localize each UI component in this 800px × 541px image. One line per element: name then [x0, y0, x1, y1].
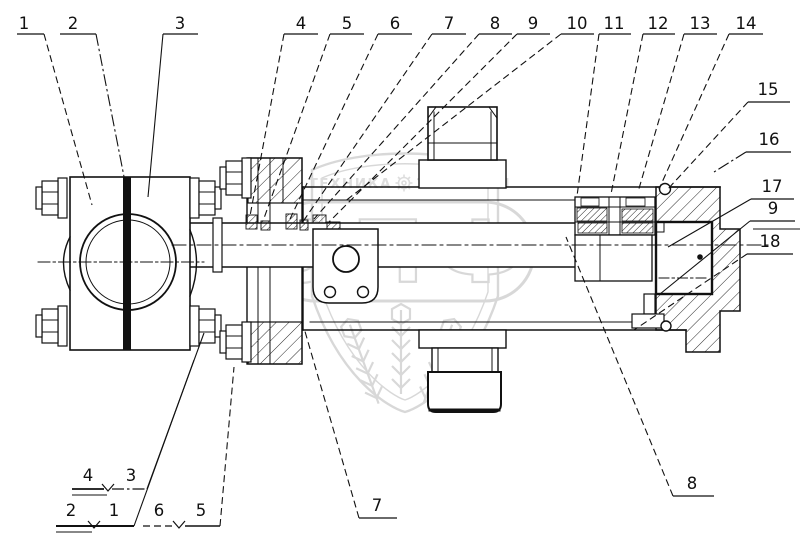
leader-line: [638, 34, 684, 192]
callout-number: 10: [567, 14, 588, 33]
callout-number: 8: [490, 14, 501, 33]
callout-number: 2: [68, 14, 79, 33]
callout-group-21: 21: [56, 360, 194, 532]
callout-number: 9: [768, 199, 779, 218]
callout-number: 5: [196, 501, 207, 520]
piston-seal-stack: [575, 197, 655, 281]
callout-number: 13: [690, 14, 711, 33]
leader-line: [96, 34, 128, 197]
callout-number: 2: [66, 501, 77, 520]
leader-line: [44, 34, 92, 205]
assembly-drawing: ТЕХНИКА ЗАПЧАСТИ ЭПФ: [0, 0, 800, 541]
clamp-bolt: [36, 178, 67, 218]
clamp-bolt: [36, 306, 67, 346]
callout-2-top: 2: [60, 14, 128, 197]
leader-line: [302, 34, 432, 223]
mounting-bracket: [313, 229, 378, 303]
top-port-boss: [419, 107, 506, 188]
leader-line: [611, 34, 643, 194]
callout-number: 17: [762, 177, 783, 196]
callout-12-top: 12: [611, 14, 675, 194]
group-vee-mark: [102, 484, 114, 491]
callout-number: 6: [390, 14, 401, 33]
callout-number: 12: [648, 14, 669, 33]
callout-number: 15: [758, 80, 779, 99]
bottom-port-boss: [419, 330, 506, 412]
callout-number: 18: [760, 232, 781, 251]
callout-number: 3: [175, 14, 186, 33]
callout-11-top: 11: [577, 14, 631, 196]
leader-line: [220, 367, 234, 526]
gear-icon: [396, 175, 413, 192]
callout-number: 3: [126, 466, 137, 485]
clamp-bolt: [190, 306, 221, 346]
callout-16-right: 16: [714, 130, 791, 172]
clamp-bolt: [190, 178, 221, 218]
callout-7-bottom: 7: [304, 328, 397, 518]
callout-number: 4: [83, 466, 94, 485]
leader-line: [577, 34, 599, 196]
callout-group-43: 43: [72, 333, 204, 495]
clamp-split-line: [123, 177, 131, 350]
callout-number: 4: [296, 14, 307, 33]
callout-number: 1: [19, 14, 30, 33]
piston-skirt: [575, 235, 652, 281]
flange-bolt-bottom: [220, 322, 251, 362]
callout-number: 8: [687, 474, 698, 493]
callout-number: 11: [604, 14, 625, 33]
end-block-foot: [632, 314, 664, 328]
group-vee-mark: [173, 521, 185, 528]
leader-line: [667, 102, 748, 190]
callout-number: 7: [444, 14, 455, 33]
callout-number: 6: [154, 501, 165, 520]
detent-ball-bottom: [661, 321, 671, 331]
leader-line: [148, 34, 163, 197]
callout-14-top: 14: [659, 14, 763, 189]
end-block-stem: [644, 294, 655, 314]
callout-3-top: 3: [148, 14, 198, 197]
callout-number: 1: [109, 501, 120, 520]
callout-number: 16: [759, 130, 780, 149]
diagram-canvas: ТЕХНИКА ЗАПЧАСТИ ЭПФ: [0, 0, 800, 541]
callout-number: 5: [342, 14, 353, 33]
leader-line: [714, 152, 746, 172]
leader-line: [304, 328, 359, 518]
flange-bolt-top: [220, 158, 251, 198]
callout-number: 7: [372, 496, 383, 515]
callout-13-top: 13: [638, 14, 717, 192]
leader-line: [659, 34, 729, 189]
callout-number: 9: [528, 14, 539, 33]
callout-number: 14: [736, 14, 757, 33]
callout-group-65: 65: [143, 367, 234, 528]
